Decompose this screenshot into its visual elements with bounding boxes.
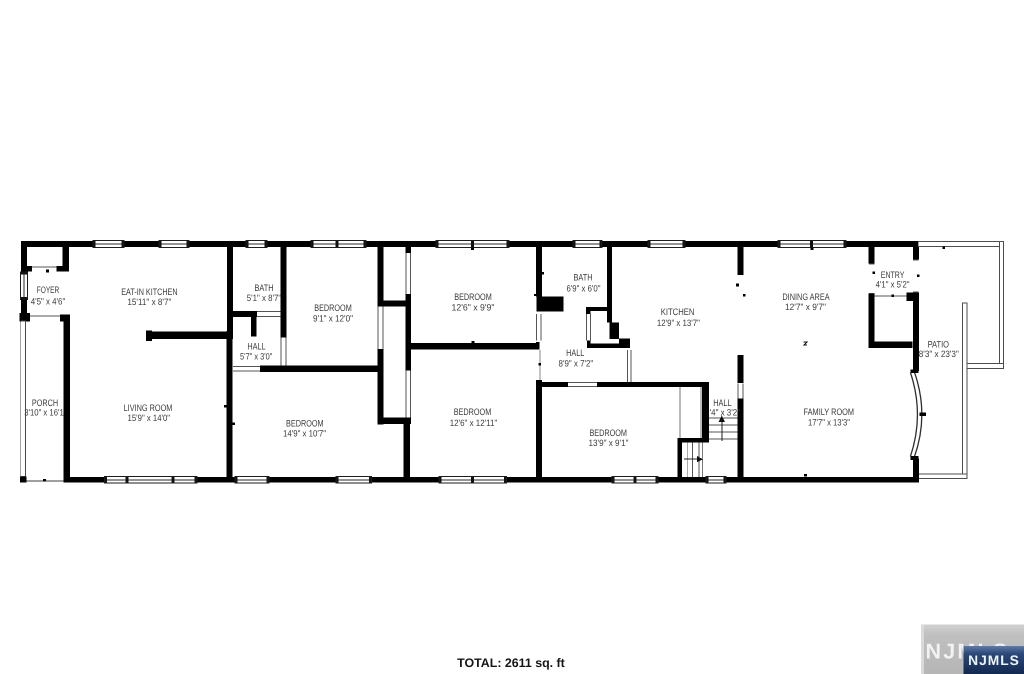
svg-text:HALL: HALL bbox=[713, 397, 731, 408]
svg-text:14'9" x 10'7": 14'9" x 10'7" bbox=[283, 429, 326, 439]
svg-text:4'1" x 5'2": 4'1" x 5'2" bbox=[876, 280, 910, 290]
svg-text:HALL: HALL bbox=[566, 347, 584, 358]
svg-text:8'3" x 23'3": 8'3" x 23'3" bbox=[919, 349, 959, 359]
svg-text:NJMLS: NJMLS bbox=[968, 653, 1020, 668]
svg-text:PORCH: PORCH bbox=[32, 397, 58, 408]
svg-text:12'6" x 9'9": 12'6" x 9'9" bbox=[452, 302, 495, 312]
svg-text:4'5" x 4'6": 4'5" x 4'6" bbox=[31, 296, 66, 306]
svg-text:3'10" x 16'1: 3'10" x 16'1 bbox=[24, 407, 64, 417]
svg-text:17'7" x 13'3": 17'7" x 13'3" bbox=[808, 417, 850, 427]
svg-text:FOYER: FOYER bbox=[37, 284, 60, 295]
svg-text:DINING AREA: DINING AREA bbox=[782, 291, 830, 302]
svg-text:FAMILY ROOM: FAMILY ROOM bbox=[804, 406, 855, 417]
svg-text:15'11" x 8'7": 15'11" x 8'7" bbox=[127, 297, 171, 307]
svg-text:HALL: HALL bbox=[247, 341, 265, 352]
svg-text:12'6" x 12'11": 12'6" x 12'11" bbox=[450, 418, 498, 428]
svg-text:13'9" x 9'1": 13'9" x 9'1" bbox=[589, 438, 629, 448]
svg-text:BATH: BATH bbox=[574, 272, 593, 283]
svg-text:LIVING ROOM: LIVING ROOM bbox=[124, 402, 173, 413]
svg-text:5'1" x 8'7": 5'1" x 8'7" bbox=[247, 293, 281, 303]
svg-text:EAT-IN KITCHEN: EAT-IN KITCHEN bbox=[121, 286, 177, 297]
svg-text:ENTRY: ENTRY bbox=[881, 269, 905, 280]
svg-text:15'9" x 14'0": 15'9" x 14'0" bbox=[128, 413, 171, 423]
svg-text:BEDROOM: BEDROOM bbox=[454, 406, 492, 417]
svg-text:TOTAL: 2611 sq. ft: TOTAL: 2611 sq. ft bbox=[457, 656, 565, 670]
svg-text:BEDROOM: BEDROOM bbox=[286, 418, 324, 429]
svg-text:12'9" x 13'7": 12'9" x 13'7" bbox=[657, 318, 700, 328]
svg-text:BEDROOM: BEDROOM bbox=[454, 291, 492, 302]
svg-text:KITCHEN: KITCHEN bbox=[661, 306, 695, 317]
svg-text:12'7" x 9'7": 12'7" x 9'7" bbox=[785, 302, 826, 312]
svg-text:BEDROOM: BEDROOM bbox=[314, 302, 352, 313]
svg-text:5'7" x 3'0": 5'7" x 3'0" bbox=[240, 352, 272, 362]
svg-text:9'1" x 12'0": 9'1" x 12'0" bbox=[313, 313, 353, 323]
svg-text:BEDROOM: BEDROOM bbox=[589, 427, 627, 438]
svg-text:PATIO: PATIO bbox=[928, 339, 949, 350]
svg-text:6'9" x 6'0": 6'9" x 6'0" bbox=[567, 283, 601, 293]
svg-text:'4" x 3'2": '4" x 3'2" bbox=[710, 408, 740, 418]
svg-text:BATH: BATH bbox=[255, 282, 274, 293]
svg-text:8'9" x 7'2": 8'9" x 7'2" bbox=[559, 359, 594, 369]
